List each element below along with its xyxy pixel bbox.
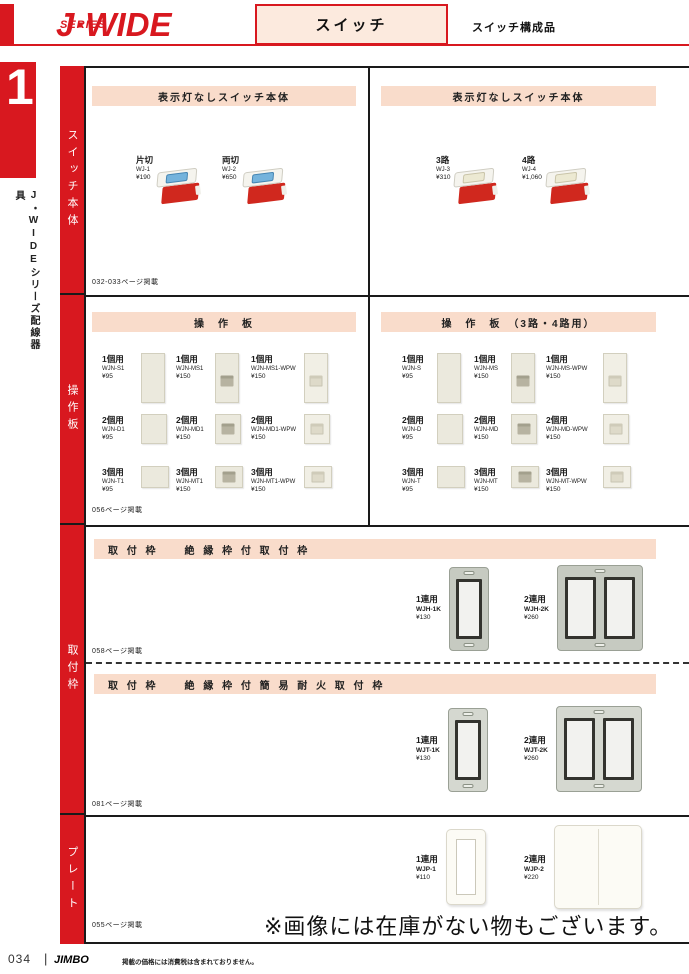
plate-image [511, 466, 539, 488]
sidebar-tab-switch-body: スイッチ本体 [60, 66, 84, 295]
product-name: 1連用 [416, 593, 441, 605]
product-price: ¥260 [524, 755, 548, 762]
product-name: 2個用 [251, 414, 301, 426]
section-wall-plate: 1連用 WJP-1 ¥110 2連用 WJP-2 ¥220 055ページ掲載 ※… [86, 817, 689, 942]
product-code: WJN-MT [474, 479, 508, 485]
subsection-fireproof-frame: 取 付 枠 絶 縁 枠 付 簡 易 耐 火 取 付 枠 1連用 WJT-1K ¥… [86, 664, 689, 817]
sidebar-tab-label: 操作板 [64, 384, 80, 435]
panel-operation-plate-right: 操 作 板 （3路・4路用） 1個用WJN-S¥95 1個用WJN-MS¥150… [372, 297, 689, 525]
section-operation-plate: 操 作 板 1個用WJN-S1¥95 1個用WJN-MS1¥150 1個用WJN… [86, 297, 689, 527]
product-code: WJN-S1 [102, 366, 138, 372]
product-price: ¥150 [546, 373, 600, 380]
product-item: 2個用WJN-D¥95 [402, 414, 463, 444]
chapter-tab: 1 [0, 62, 36, 178]
plate-image [304, 353, 328, 403]
product-code: WJ-3 [436, 167, 450, 173]
plate-image [304, 414, 330, 444]
product-name: 1連用 [416, 853, 438, 865]
product-item: 1個用WJN-MS¥150 [474, 353, 535, 403]
plate-image [603, 414, 629, 444]
section-switch-body: 表示灯なしスイッチ本体 片切 WJ-1 ¥190 両切 WJ-2 ¥650 [86, 68, 689, 297]
section-banner: 操 作 板 （3路・4路用） [381, 312, 656, 332]
product-code: WJN-MT1 [176, 479, 212, 485]
product-item: 3個用WJN-MT¥150 [474, 466, 539, 493]
plate-image [141, 353, 165, 403]
stock-notice: ※画像には在庫がない物もございます。 [264, 909, 672, 941]
product-code: WJN-MT1-WPW [251, 479, 301, 485]
product-name: 2個用 [402, 414, 434, 426]
product-code: WJT-1K [416, 747, 440, 754]
product-item: 3路 WJ-3 ¥310 [436, 154, 499, 206]
product-price: ¥150 [251, 373, 301, 380]
product-code: WJ-4 [522, 167, 542, 173]
product-code: WJN-D [402, 427, 434, 433]
product-item: 2連用 WJT-2K ¥260 [524, 706, 642, 792]
product-item: 1連用 WJP-1 ¥110 [416, 829, 486, 905]
series-vertical-label: J・WIDEシリーズ配線器具 [11, 190, 41, 360]
product-item: 1個用WJN-S1¥95 [102, 353, 165, 403]
product-item: 3個用WJN-T¥95 [402, 466, 465, 493]
product-name: 1個用 [251, 353, 301, 365]
switch-body-image [543, 165, 593, 208]
chapter-number: 1 [0, 62, 36, 112]
product-item: 1個用WJN-MS1¥150 [176, 353, 239, 403]
product-name: 2連用 [524, 734, 548, 746]
product-item: 2個用WJN-MD1-WPW¥150 [251, 414, 330, 444]
page-footer: 034 | JIMBO 掲載の価格には消費税は含まれておりません。 [0, 948, 689, 974]
product-price: ¥95 [102, 373, 138, 380]
switch-body-image [154, 165, 204, 208]
product-name: 1個用 [474, 353, 508, 365]
product-name: 3路 [436, 154, 450, 166]
product-item: 3個用WJN-MT1-WPW¥150 [251, 466, 332, 493]
product-item: 片切 WJ-1 ¥190 [136, 154, 202, 206]
product-price: ¥1,060 [522, 174, 542, 181]
sidebar-tab-operation-plate: 操作板 [60, 295, 84, 525]
mounting-frame-image [449, 567, 489, 651]
section-banner: 表示灯なしスイッチ本体 [381, 86, 656, 106]
page-reference-note: 032-033ページ掲載 [92, 277, 159, 287]
product-price: ¥150 [251, 486, 301, 493]
page-reference-note: 055ページ掲載 [92, 920, 143, 930]
product-name: 片切 [136, 154, 153, 166]
product-item: 1個用WJN-MS1-WPW¥150 [251, 353, 328, 403]
product-price: ¥260 [524, 614, 549, 621]
wall-plate-image [446, 829, 486, 905]
product-price: ¥95 [402, 373, 434, 380]
page-number-separator: | [44, 951, 47, 966]
product-name: 1個用 [102, 353, 138, 365]
product-code: WJH-1K [416, 606, 441, 613]
product-price: ¥130 [416, 614, 441, 621]
brand-logo: J·WIDESERIES [56, 6, 172, 44]
product-code: WJN-MS-WPW [546, 366, 600, 372]
sidebar-tab-label: プレート [64, 846, 80, 914]
product-name: 2個用 [474, 414, 508, 426]
product-price: ¥650 [222, 174, 239, 181]
page-reference-note: 081ページ掲載 [92, 799, 143, 809]
product-price: ¥150 [474, 373, 508, 380]
product-name: 3個用 [474, 466, 508, 478]
product-name: 2連用 [524, 853, 546, 865]
product-code: WJN-MS1-WPW [251, 366, 301, 372]
product-name: 2個用 [102, 414, 138, 426]
plate-image [215, 414, 241, 444]
plate-image [603, 353, 627, 403]
section-banner: 取 付 枠 絶 縁 枠 付 簡 易 耐 火 取 付 枠 [94, 674, 656, 694]
product-price: ¥310 [436, 174, 450, 181]
category-title-box: スイッチ [255, 4, 448, 45]
product-price: ¥150 [176, 486, 212, 493]
sidebar-tab-mounting-frame: 取付枠 [60, 525, 84, 815]
product-name: 2個用 [176, 414, 212, 426]
product-name: 1個用 [176, 353, 212, 365]
product-item: 3個用WJN-MT-WPW¥150 [546, 466, 631, 493]
product-code: WJN-MS1 [176, 366, 212, 372]
sidebar-tab-label: 取付枠 [64, 644, 80, 695]
plate-image [437, 466, 465, 488]
product-code: WJN-MD-WPW [546, 427, 600, 433]
product-price: ¥150 [474, 486, 508, 493]
product-price: ¥150 [251, 434, 301, 441]
product-item: 2個用WJN-MD1¥150 [176, 414, 241, 444]
product-name: 2連用 [524, 593, 549, 605]
product-price: ¥220 [524, 874, 546, 881]
panel-switch-body-right: 表示灯なしスイッチ本体 3路 WJ-3 ¥310 4路 WJ-4 ¥1,060 [372, 68, 689, 295]
product-code: WJN-T1 [102, 479, 138, 485]
mounting-frame-image [556, 706, 642, 792]
product-code: WJN-S [402, 366, 434, 372]
section-banner: 取 付 枠 絶 縁 枠 付 取 付 枠 [94, 539, 656, 559]
product-code: WJN-MS [474, 366, 508, 372]
product-name: 1連用 [416, 734, 440, 746]
product-code: WJN-MD [474, 427, 508, 433]
product-code: WJN-MD1 [176, 427, 212, 433]
subsection-insulated-frame: 取 付 枠 絶 縁 枠 付 取 付 枠 1連用 WJH-1K ¥130 2連用 … [86, 527, 689, 664]
panel-operation-plate-left: 操 作 板 1個用WJN-S1¥95 1個用WJN-MS1¥150 1個用WJN… [86, 297, 370, 525]
page-reference-note: 056ページ掲載 [92, 505, 143, 515]
product-item: 1個用WJN-MS-WPW¥150 [546, 353, 627, 403]
product-price: ¥150 [546, 486, 600, 493]
plate-image [304, 466, 332, 488]
section-mounting-frame: 取 付 枠 絶 縁 枠 付 取 付 枠 1連用 WJH-1K ¥130 2連用 … [86, 527, 689, 817]
plate-image [215, 466, 243, 488]
product-item: 2個用WJN-MD-WPW¥150 [546, 414, 629, 444]
product-code: WJP-1 [416, 866, 438, 873]
product-code: WJ-2 [222, 167, 239, 173]
product-price: ¥95 [402, 486, 434, 493]
catalog-page: J·WIDESERIES スイッチ スイッチ構成品 1 J・WIDEシリーズ配線… [0, 0, 689, 974]
product-code: WJT-2K [524, 747, 548, 754]
mounting-frame-image [557, 565, 643, 651]
page-number: 034 [8, 952, 31, 966]
product-code: WJ-1 [136, 167, 153, 173]
product-item: 両切 WJ-2 ¥650 [222, 154, 288, 206]
product-price: ¥150 [176, 373, 212, 380]
product-price: ¥95 [102, 486, 138, 493]
product-item: 1個用WJN-S¥95 [402, 353, 461, 403]
product-price: ¥95 [402, 434, 434, 441]
product-item: 2個用WJN-D1¥95 [102, 414, 167, 444]
subcategory-title: スイッチ構成品 [472, 19, 556, 35]
mounting-frame-image [448, 708, 488, 792]
product-name: 3個用 [176, 466, 212, 478]
plate-image [437, 353, 461, 403]
plate-image [511, 353, 535, 403]
section-banner: 表示灯なしスイッチ本体 [92, 86, 356, 106]
product-price: ¥150 [176, 434, 212, 441]
product-item: 4路 WJ-4 ¥1,060 [522, 154, 591, 206]
sidebar-tab-plate: プレート [60, 815, 84, 944]
product-name: 1個用 [402, 353, 434, 365]
switch-body-image [240, 165, 290, 208]
product-code: WJN-T [402, 479, 434, 485]
product-price: ¥150 [546, 434, 600, 441]
product-name: 3個用 [546, 466, 600, 478]
plate-image [511, 414, 537, 444]
product-item: 2連用 WJH-2K ¥260 [524, 565, 643, 651]
product-item: 1連用 WJT-1K ¥130 [416, 708, 488, 792]
sidebar-tab-label: スイッチ本体 [64, 129, 80, 231]
product-code: WJN-D1 [102, 427, 138, 433]
product-price: ¥95 [102, 434, 138, 441]
header-red-accent-bar [0, 4, 14, 45]
product-name: 4路 [522, 154, 542, 166]
product-price: ¥150 [474, 434, 508, 441]
product-price: ¥110 [416, 874, 438, 881]
product-name: 3個用 [402, 466, 434, 478]
product-name: 2個用 [546, 414, 600, 426]
product-item: 3個用WJN-MT1¥150 [176, 466, 243, 493]
product-price: ¥130 [416, 755, 440, 762]
category-title: スイッチ [315, 14, 387, 35]
product-code: WJP-2 [524, 866, 546, 873]
section-banner: 操 作 板 [92, 312, 356, 332]
product-name: 3個用 [102, 466, 138, 478]
product-name: 3個用 [251, 466, 301, 478]
product-item: 2連用 WJP-2 ¥220 [524, 825, 642, 909]
main-content: 表示灯なしスイッチ本体 片切 WJ-1 ¥190 両切 WJ-2 ¥650 [84, 66, 689, 944]
plate-image [603, 466, 631, 488]
switch-body-image [451, 165, 501, 208]
plate-image [141, 414, 167, 444]
product-code: WJN-MD1-WPW [251, 427, 301, 433]
product-price: ¥190 [136, 174, 153, 181]
product-code: WJH-2K [524, 606, 549, 613]
product-item: 2個用WJN-MD¥150 [474, 414, 537, 444]
footer-brand-logo: JIMBO [54, 954, 89, 966]
wall-plate-image [554, 825, 642, 909]
page-reference-note: 058ページ掲載 [92, 646, 143, 656]
product-name: 両切 [222, 154, 239, 166]
plate-image [215, 353, 239, 403]
panel-switch-body-left: 表示灯なしスイッチ本体 片切 WJ-1 ¥190 両切 WJ-2 ¥650 [86, 68, 370, 295]
product-code: WJN-MT-WPW [546, 479, 600, 485]
plate-image [437, 414, 463, 444]
brand-logo-series-text: SERIES [60, 6, 176, 44]
header-divider-line [0, 44, 689, 46]
product-item: 1連用 WJH-1K ¥130 [416, 567, 489, 651]
product-item: 3個用WJN-T1¥95 [102, 466, 169, 493]
product-name: 1個用 [546, 353, 600, 365]
tax-disclaimer: 掲載の価格には消費税は含まれておりません。 [122, 956, 258, 966]
plate-image [141, 466, 169, 488]
